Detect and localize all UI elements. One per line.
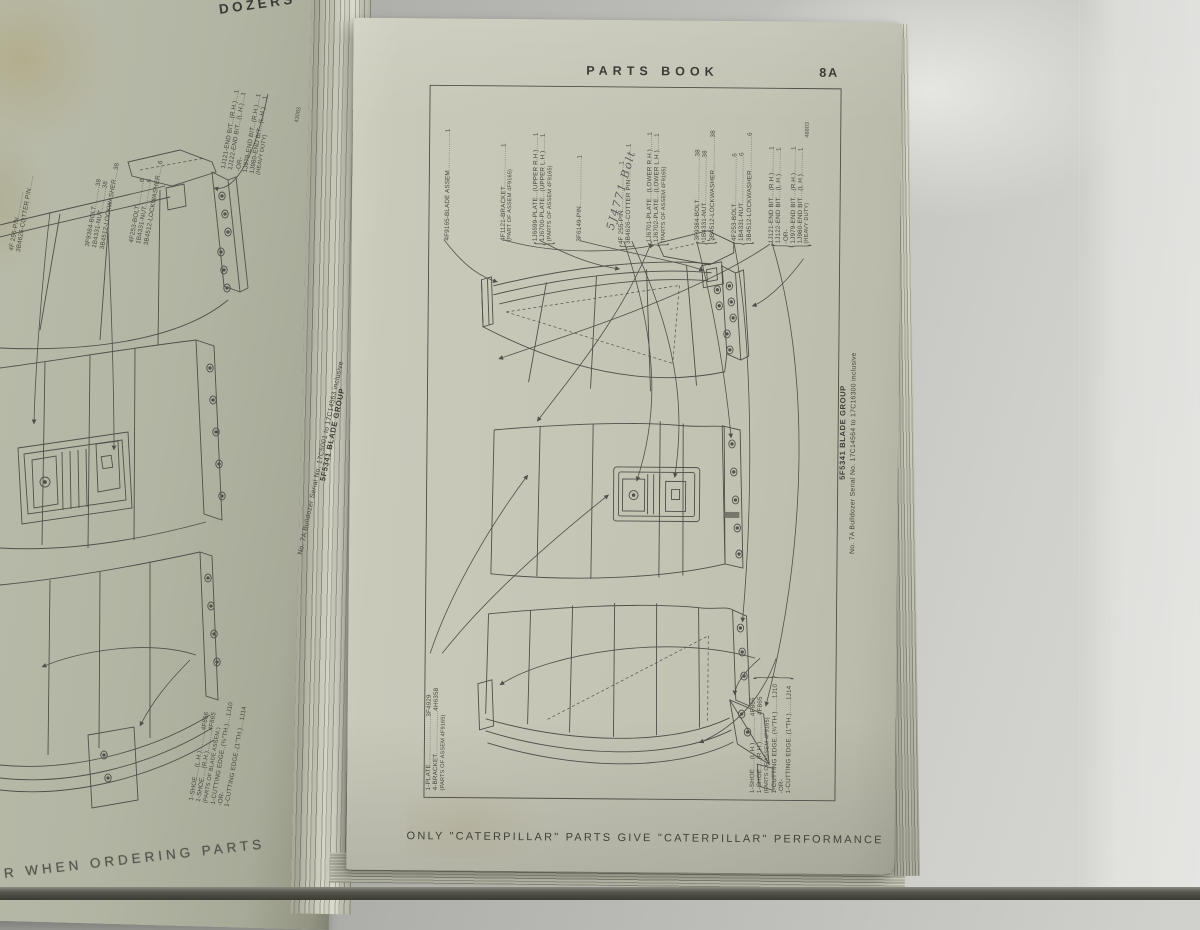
part-callout: (PARTS OF ASSEM 4F9165): [660, 132, 668, 242]
part-callout: (HEAVY DUTY): [804, 146, 812, 243]
drawing-number: 48803: [805, 122, 811, 138]
part-callout: (PART OF ASSEM 4F9165): [507, 143, 515, 241]
callout-brace: {: [533, 242, 556, 245]
blade-group-title: 5F5341 BLADE GROUP: [838, 385, 848, 480]
callout-brace: {: [769, 244, 812, 247]
part-callout: 3B4512-LOCKWASHER.................38: [708, 130, 716, 241]
part-callout-group: 1-SHOE.....(L.H.)..............4F866 1-S…: [749, 684, 794, 794]
left-page-diagram: [0, 0, 360, 915]
callout-brace: {: [732, 242, 755, 245]
part-callout-group: 3F6149-PIN.........................1: [576, 155, 584, 242]
part-callout: 3F6149-PIN.........................1: [576, 155, 584, 242]
table-edge: [0, 887, 1200, 900]
part-callout-group: 1J6701-PLATE...(LOWER R.H.).......1 1J67…: [646, 132, 669, 242]
callout-brace: }: [751, 676, 794, 679]
part-callout: 1-CUTTING EDGE..(1″TH.).......1J14: [785, 684, 793, 794]
callout-brace: {: [619, 245, 634, 248]
part-callout-group: 1-PLATE.........................3F4929 4…: [425, 688, 448, 791]
part-callout-group: 4F253-BOLT.........................6 1B4…: [731, 132, 754, 241]
part-callout: (PARTS OF ASSEM 4F9165): [546, 133, 554, 242]
part-callout-group: 1J6699-PLATE...(UPPER R.H.).......1 1J67…: [532, 132, 555, 241]
part-callout-group: 4F9165-BLADE ASSEM....................1: [444, 129, 452, 241]
part-callout-group: 4F1121-BRACKET.....................1 (PA…: [500, 143, 515, 241]
photo-of-open-parts-book: { "colors": { "background": "#b6b6b2", "…: [0, 0, 1200, 900]
right-page-paper: PARTS BOOK 8A: [346, 18, 901, 875]
callout-brace: {: [695, 242, 718, 245]
part-callout-group: 3F9384-BOLT.......................38 1B4…: [694, 130, 717, 241]
left-page-content: DOZERS 4F 255-PIN.............. 3B4626-C…: [0, 0, 360, 915]
callout-brace: {: [647, 243, 670, 246]
part-callout: 3B4512-LOCKWASHER..................6: [745, 132, 753, 241]
serial-number-range: No. 7A Bulldozer Serial No. 17C14564 to …: [849, 352, 858, 554]
part-callout-group: 1J121-END BIT....(R.H.)............1 1J1…: [768, 146, 813, 243]
part-callout: (PARTS OF ASSEM 4F9165): [440, 688, 448, 791]
part-callout: 4F9165-BLADE ASSEM....................1: [444, 129, 452, 241]
